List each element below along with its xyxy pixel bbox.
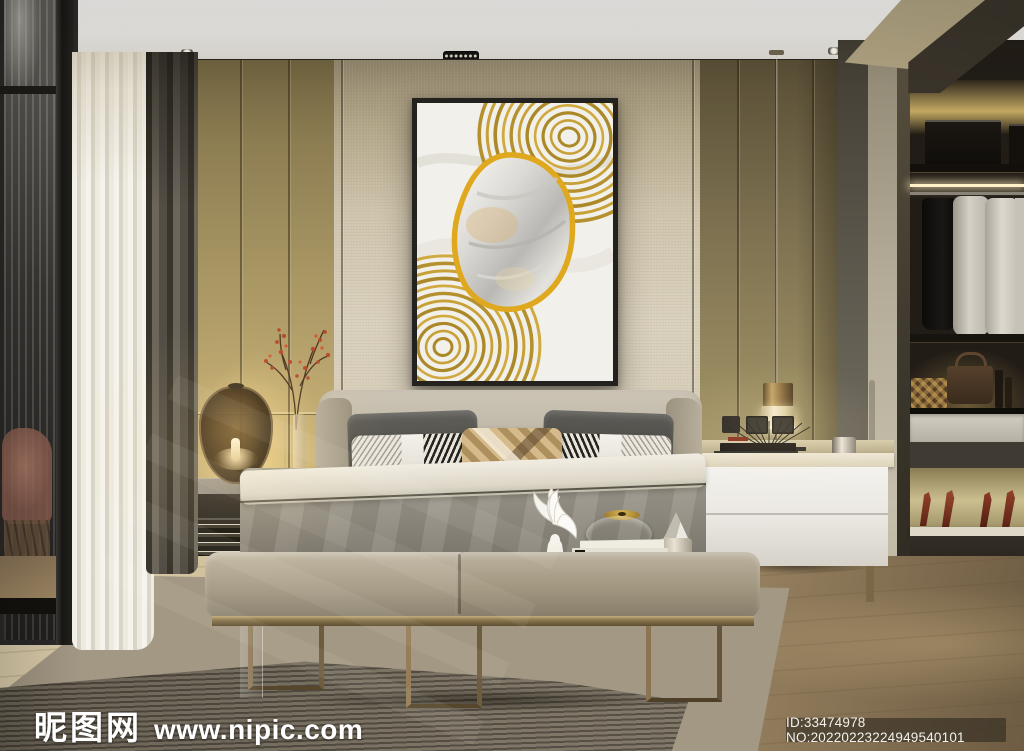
sheer-curtain [72, 52, 154, 650]
woven-basket [911, 378, 947, 408]
bench-cushion-left [205, 552, 470, 618]
closet-band [910, 442, 1024, 468]
watermark-url: www.nipic.com [154, 714, 363, 746]
sliding-glass-door [0, 0, 78, 645]
closet-shelf [910, 164, 1024, 172]
storage-box [925, 120, 1001, 168]
shoe-shelf [910, 527, 1024, 536]
closet-drawers [910, 414, 1024, 442]
chair-legs [4, 520, 50, 560]
bench-cushion-right [455, 552, 760, 618]
closet-frame [897, 40, 910, 643]
watermark-site: 昵图网 www.nipic.com [34, 701, 363, 749]
acrylic-leg [240, 626, 263, 698]
handbag [947, 366, 993, 404]
bench-leg-loop [406, 626, 482, 708]
bottle [1005, 377, 1012, 408]
watermark-id-badge: ID:33474978 NO:20220223224949540101 [786, 718, 1006, 742]
hanging-white-shirt [953, 196, 989, 336]
artwork-graphic [417, 103, 613, 381]
balcony-lounge-chair [2, 428, 52, 524]
watermark-logo: 昵图网 [34, 701, 142, 749]
bench-rail [212, 616, 754, 626]
dark-curtain [146, 52, 198, 574]
closet-led-strip [910, 184, 1024, 187]
bench-leg-loop [646, 626, 722, 702]
book-on-nightstand [720, 443, 796, 451]
storage-box [1009, 124, 1024, 168]
nightstand-top [698, 453, 894, 467]
watermark-id-text: ID:33474978 NO:20220223224949540101 [786, 715, 1006, 745]
bench-area [200, 488, 765, 728]
clothes-rod [910, 192, 1024, 195]
pendant-cable [776, 52, 777, 384]
walk-in-closet [897, 40, 1024, 643]
hanging-black-coat [922, 198, 956, 330]
framed-abstract-artwork [412, 98, 618, 386]
bedroom-photo: 昵图网 www.nipic.com ID:33474978 NO:2022022… [0, 0, 1024, 751]
bottle [995, 370, 1003, 408]
hanging-white-shirt [985, 198, 1019, 336]
hanging-white-shirt [1015, 198, 1024, 336]
book-accent [728, 437, 748, 441]
pendant-lamp-brass [763, 383, 793, 407]
cushion-seam [458, 554, 461, 614]
pendant-canopy [769, 50, 784, 55]
closet-shelf [910, 334, 1024, 342]
artwork-canvas [417, 103, 613, 381]
